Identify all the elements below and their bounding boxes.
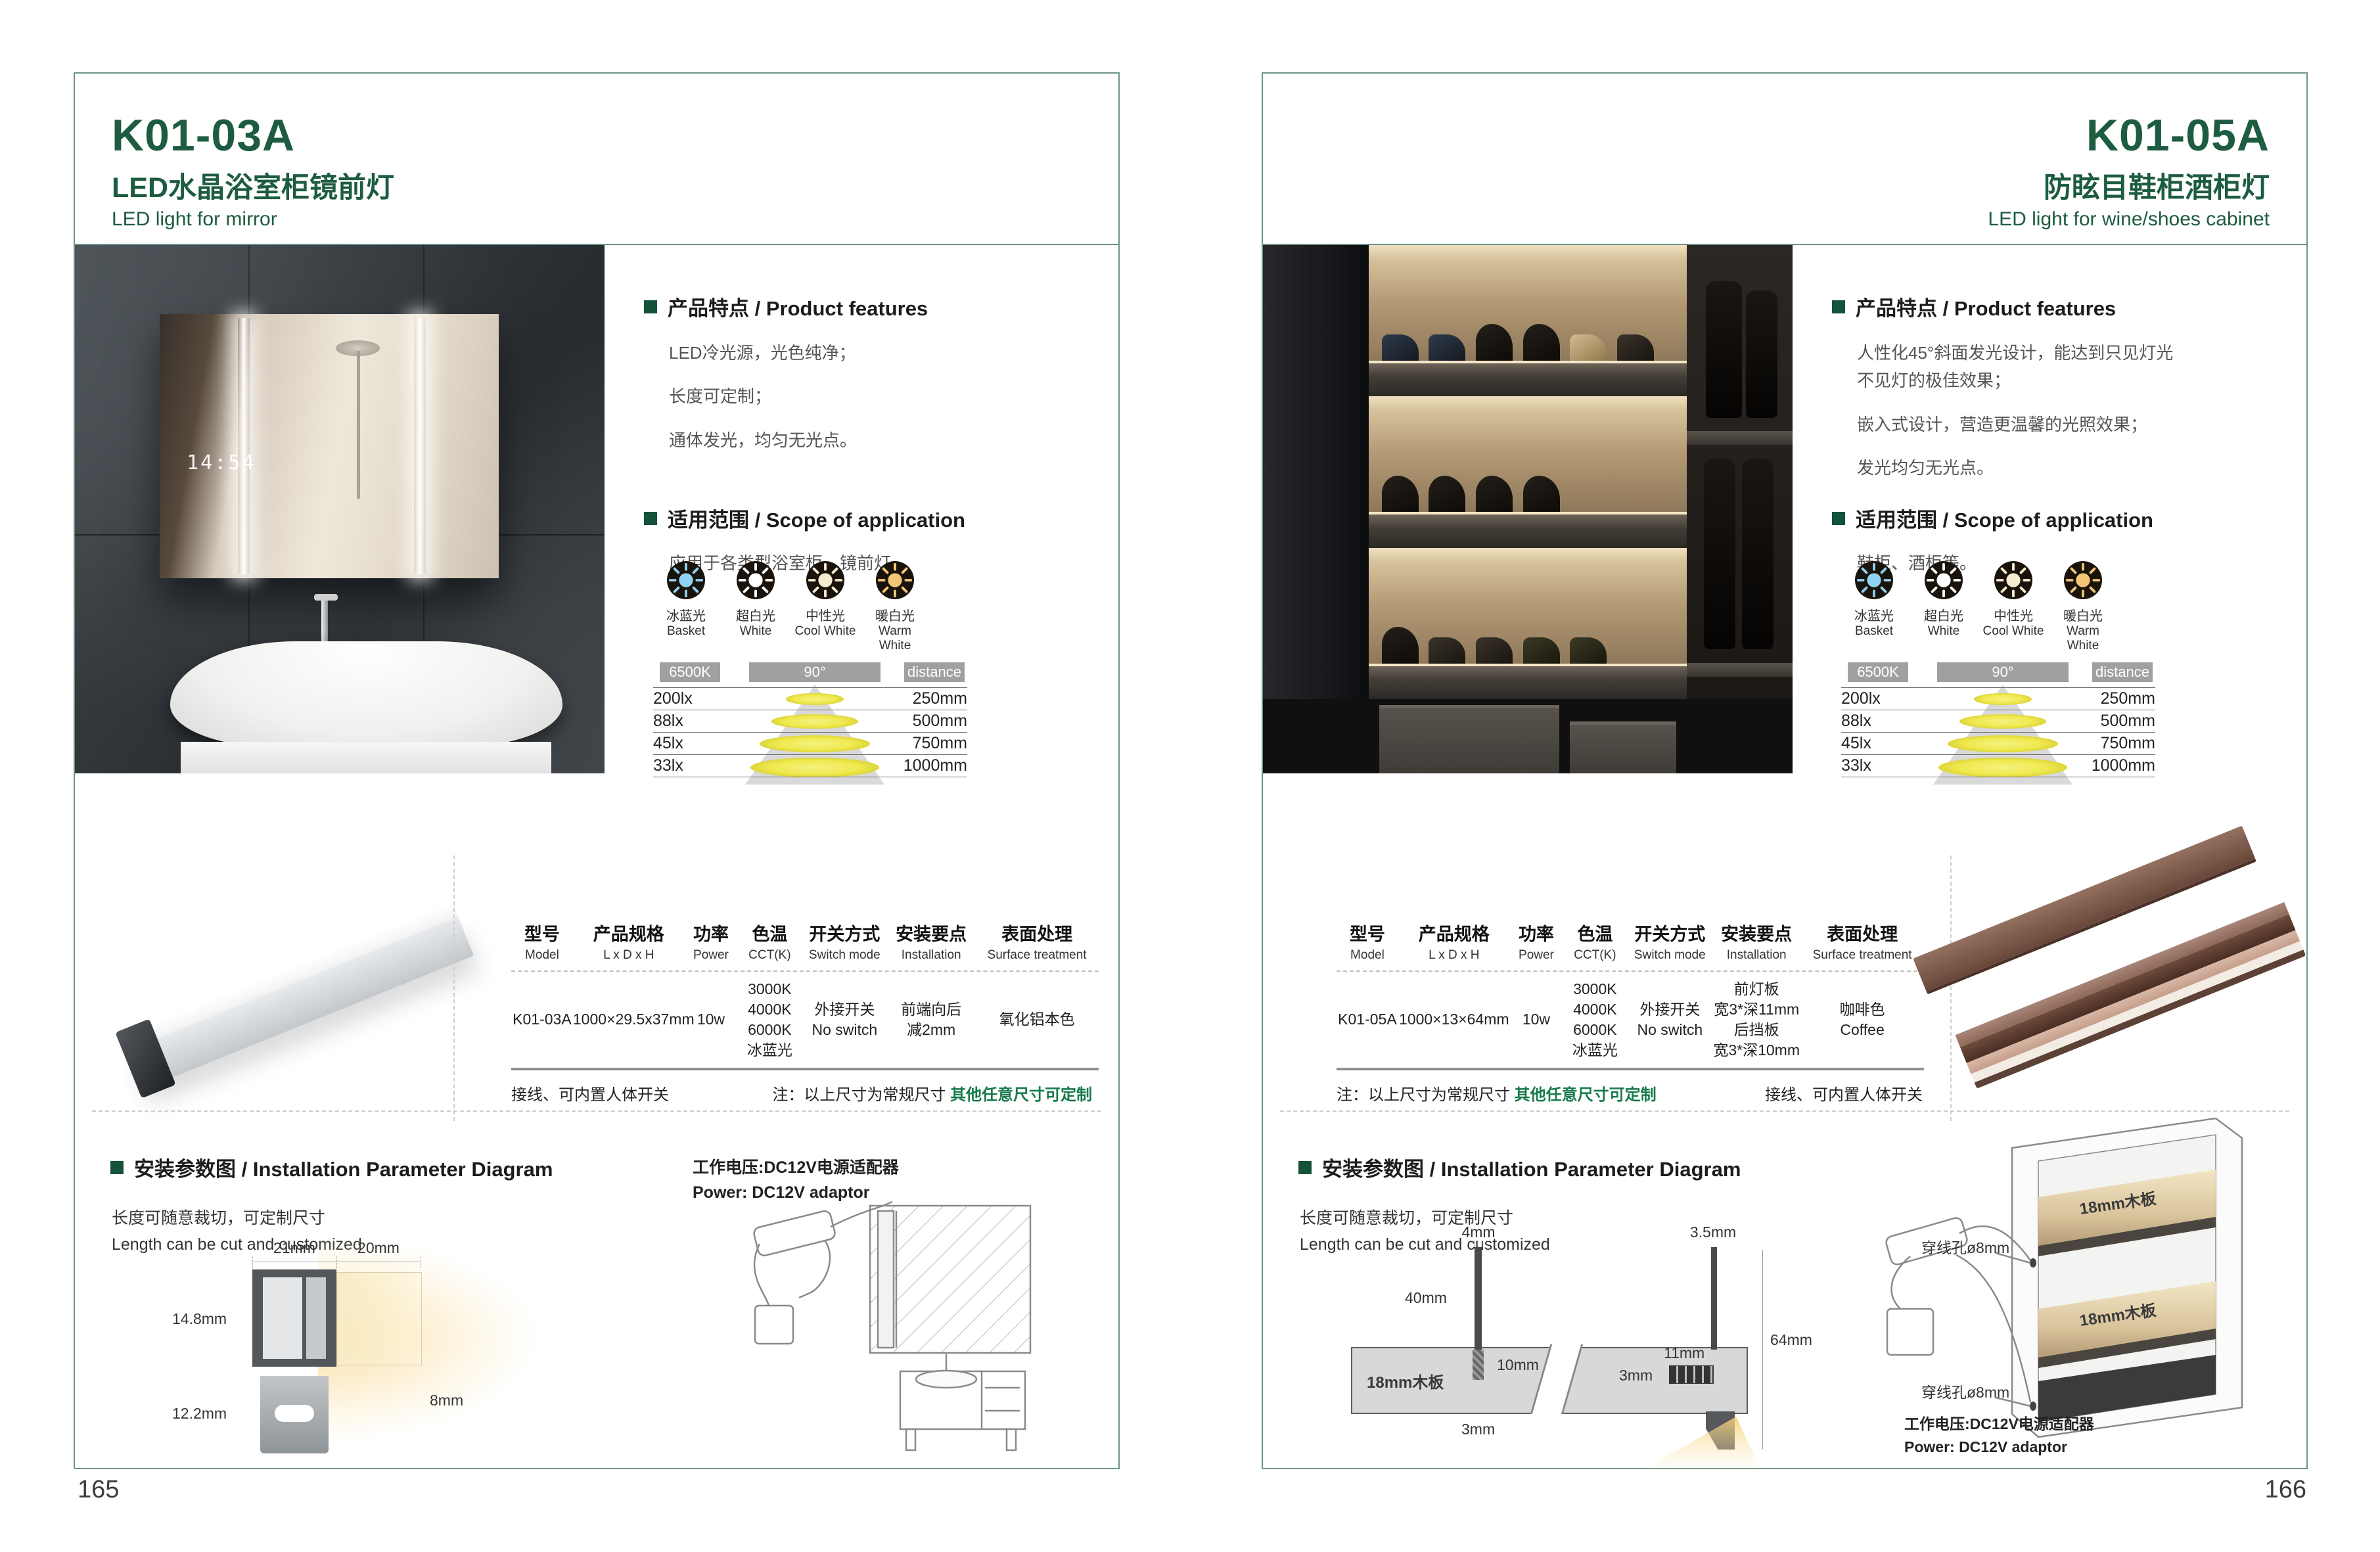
features-header: 产品特点 / Product features (668, 292, 928, 321)
spec-table: 型号Model 产品规格L x D x H 功率Power 色温CCT(K) 开… (1337, 920, 1924, 1070)
feature-line: 长度可定制； (669, 384, 1097, 408)
sun-icon (737, 561, 775, 599)
spec-table-row: K01-05A 1000×13×64mm 10w 3000K4000K6000K… (1337, 972, 1924, 1070)
spec-table-header: 型号Model 产品规格L x D x H 功率Power 色温CCT(K) 开… (1337, 920, 1924, 972)
profile-front-face (129, 917, 474, 1089)
section-bullet-icon (1298, 1161, 1312, 1174)
spec-table: 型号Model 产品规格L x D x H 功率Power 色温CCT(K) 开… (511, 920, 1099, 1070)
dim-14-8mm: 14.8mm (172, 1310, 227, 1328)
lit-shelf-bay (1369, 548, 1687, 699)
page-right: K01-05A 防眩目鞋柜酒柜灯 LED light for wine/shoe… (1262, 72, 2308, 1469)
light-option-ice-blue: 冰蓝光 Basket (653, 561, 719, 653)
beam-row: 45lx750mm (1841, 733, 2155, 755)
cabinet-shelf-bays (1369, 245, 1687, 699)
beam-angle-badge: 90° (1937, 662, 2069, 682)
size-note: 注：以上尺寸为常规尺寸 其他任意尺寸可定制 (1337, 1082, 1657, 1105)
beam-row: 88lx500mm (1841, 710, 2155, 733)
spec-table-row: K01-03A 1000×29.5x37mm 10w 3000K4000K600… (511, 972, 1099, 1070)
install-diagram-cross-section: 18mm木板 4mm 40mm 10mm 3mm 3.5mm 11mm 3mm … (1309, 1223, 1841, 1473)
spec-table-header: 型号Model 产品规格L x D x H 功率Power 色温CCT(K) 开… (511, 920, 1099, 972)
light-options-and-beam: 冰蓝光 Basket 超白光 White 中性光 Cool White 暖白光 … (653, 561, 982, 777)
light-color-options: 冰蓝光 Basket 超白光 White 中性光 Cool White 暖白光 … (653, 561, 982, 653)
sun-icon (1925, 561, 1963, 599)
wash-basin (170, 641, 562, 747)
product-title-en: LED light for mirror (112, 208, 394, 231)
dim-10mm: 10mm (1497, 1356, 1539, 1374)
product-title-cn: LED水晶浴室柜镜前灯 (112, 165, 394, 206)
wire-hole-label: 穿线孔ø8mm (1921, 1380, 2009, 1402)
shower-pipe-reflection (357, 351, 360, 499)
install-sketch-mirror-cabinet: 工作电压:DC12V电源适配器 Power: DC12V adaptor (528, 1089, 1100, 1460)
page-header: K01-05A 防眩目鞋柜酒柜灯 LED light for wine/shoe… (1988, 113, 2270, 231)
light-option-white: 超白光 White (723, 561, 789, 653)
feature-line: LED冷光源，光色纯净； (669, 341, 1097, 365)
catalog-spread: K01-03A LED水晶浴室柜镜前灯 LED light for mirror… (0, 0, 2380, 1552)
feature-line: 嵌入式设计，营造更温馨的光照效果； (1857, 413, 2285, 436)
install-diagram-profile: 21mm 20mm 14.8mm 12.2mm 8mm (154, 1223, 548, 1473)
distance-badge: distance (2092, 662, 2153, 682)
features-header: 产品特点 / Product features (1856, 292, 2116, 321)
led-mirror: 14:54 (160, 314, 499, 578)
beam-row: 33lx1000mm (1841, 755, 2155, 777)
sun-icon (876, 561, 914, 599)
mirror-cabinet-line-art (528, 1089, 1100, 1460)
dim-line-64mm (1762, 1250, 1763, 1449)
scope-header: 适用范围 / Scope of application (668, 503, 965, 533)
section-bullet-icon (1832, 512, 1845, 525)
feature-line: 人性化45°斜面发光设计，能达到只见灯光 (1857, 341, 2285, 365)
beam-row: 33lx1000mm (653, 755, 967, 777)
beam-row: 88lx500mm (653, 710, 967, 733)
sun-icon (2064, 561, 2102, 599)
light-option-white: 超白光 White (1911, 561, 1977, 653)
dim-20mm: 20mm (336, 1239, 421, 1257)
faucet (321, 594, 328, 648)
board-label: 18mm木板 (1367, 1369, 1444, 1392)
section-bullet-icon (644, 512, 657, 525)
section-bullet-icon (644, 300, 657, 313)
dim-11mm: 11mm (1664, 1344, 1705, 1362)
sun-icon (806, 561, 844, 599)
beam-distance-chart: 6500K 90° distance 200lx250mm 88lx500mm … (653, 662, 967, 777)
product-photo-mirror: 14:54 (75, 245, 605, 773)
lit-shelf-bay (1369, 396, 1687, 547)
light-option-cool-white: 中性光 Cool White (1980, 561, 2046, 653)
cabinet-left-stile (1263, 245, 1369, 773)
clip-slot (275, 1405, 314, 1422)
product-photo-shoe-cabinet (1263, 245, 1793, 773)
dim-40mm: 40mm (1405, 1289, 1447, 1307)
dim-8mm: 8mm (430, 1392, 463, 1409)
beam-row: 45lx750mm (653, 733, 967, 755)
light-option-cool-white: 中性光 Cool White (792, 561, 858, 653)
mounting-clip (260, 1376, 329, 1453)
feature-line: 通体发光，均匀无光点。 (669, 428, 1097, 452)
wire-hole-label: 穿线孔ø8mm (1921, 1235, 2009, 1258)
page-left: K01-03A LED水晶浴室柜镜前灯 LED light for mirror… (74, 72, 1120, 1469)
vanity-cabinet (181, 742, 551, 773)
product-model: K01-05A (1988, 113, 2270, 158)
feature-line: 不见灯的极佳效果； (1857, 369, 2285, 392)
rear-stop-board-lip (1711, 1247, 1717, 1350)
light-cone-graphic (1637, 1417, 1762, 1473)
led-strip-in-groove (1669, 1365, 1714, 1384)
page-header: K01-03A LED水晶浴室柜镜前灯 LED light for mirror (112, 113, 394, 231)
board-slot (1473, 1350, 1484, 1380)
cabinet-right-column (1687, 245, 1793, 699)
light-color-options: 冰蓝光 Basket 超白光 White 中性光 Cool White 暖白光 … (1841, 561, 2170, 653)
features-section: 产品特点 / Product features 人性化45°斜面发光设计，能达到… (1832, 292, 2285, 500)
power-note: 工作电压:DC12V电源适配器 Power: DC12V adaptor (693, 1156, 899, 1205)
lit-shelf-bay (1369, 245, 1687, 396)
cct-badge: 6500K (1848, 662, 1908, 682)
feature-line: 发光均匀无光点。 (1857, 456, 2285, 480)
product-render-aluminium (114, 882, 482, 1158)
profile-cross-section (252, 1269, 336, 1367)
light-option-warm-white: 暖白光 Warm White (862, 561, 928, 653)
install-section-header: 安装参数图 / Installation Parameter Diagram (1298, 1153, 1741, 1182)
sun-icon (1855, 561, 1893, 599)
faucet-spout (314, 594, 338, 601)
page-number-left: 165 (78, 1476, 119, 1504)
cabinet-line-art (1848, 1099, 2301, 1467)
beam-angle-badge: 90° (749, 662, 881, 682)
install-section-header: 安装参数图 / Installation Parameter Diagram (110, 1153, 553, 1182)
beam-row: 200lx250mm (1841, 687, 2155, 710)
power-note: 工作电压:DC12V电源适配器 Power: DC12V adaptor (1904, 1413, 2094, 1458)
light-options-and-beam: 冰蓝光 Basket 超白光 White 中性光 Cool White 暖白光 … (1841, 561, 2170, 777)
product-model: K01-03A (112, 113, 394, 158)
distance-badge: distance (904, 662, 965, 682)
light-emission-area (336, 1272, 422, 1365)
product-title-en: LED light for wine/shoes cabinet (1988, 208, 2270, 231)
mirror-led-strip (238, 318, 250, 574)
cabinet-base (1263, 699, 1793, 773)
beam-distance-chart: 6500K 90° distance 200lx250mm 88lx500mm … (1841, 662, 2155, 777)
section-bullet-icon (110, 1161, 124, 1174)
dim-12-2mm: 12.2mm (172, 1405, 227, 1423)
mirror-led-strip (414, 318, 426, 574)
features-section: 产品特点 / Product features LED冷光源，光色纯净； 长度可… (644, 292, 1097, 472)
dim-4mm: 4mm (1451, 1223, 1506, 1241)
beam-row: 200lx250mm (653, 687, 967, 710)
section-bullet-icon (1832, 300, 1845, 313)
sun-icon (667, 561, 705, 599)
install-sketch-shoe-cabinet: 穿线孔ø8mm 穿线孔ø8mm 18mm木板 18mm木板 工作电压:DC12V… (1848, 1099, 2301, 1467)
light-option-warm-white: 暖白光 Warm White (2050, 561, 2116, 653)
front-lamp-board-pin (1475, 1247, 1482, 1350)
dim-3-5mm: 3.5mm (1677, 1223, 1749, 1241)
dim-3mm-strip: 3mm (1619, 1367, 1653, 1384)
dim-21mm: 21mm (252, 1239, 336, 1257)
light-option-ice-blue: 冰蓝光 Basket (1841, 561, 1907, 653)
sun-icon (1994, 561, 2032, 599)
cct-badge: 6500K (660, 662, 720, 682)
mirror-clock: 14:54 (187, 451, 256, 474)
product-title-cn: 防眩目鞋柜酒柜灯 (1988, 165, 2270, 206)
scope-header: 适用范围 / Scope of application (1856, 503, 2153, 533)
dashed-separator-vertical (453, 856, 455, 1121)
dim-64mm: 64mm (1770, 1331, 1812, 1349)
dim-3mm-slot: 3mm (1461, 1421, 1495, 1438)
page-number-right: 166 (2234, 1476, 2306, 1504)
